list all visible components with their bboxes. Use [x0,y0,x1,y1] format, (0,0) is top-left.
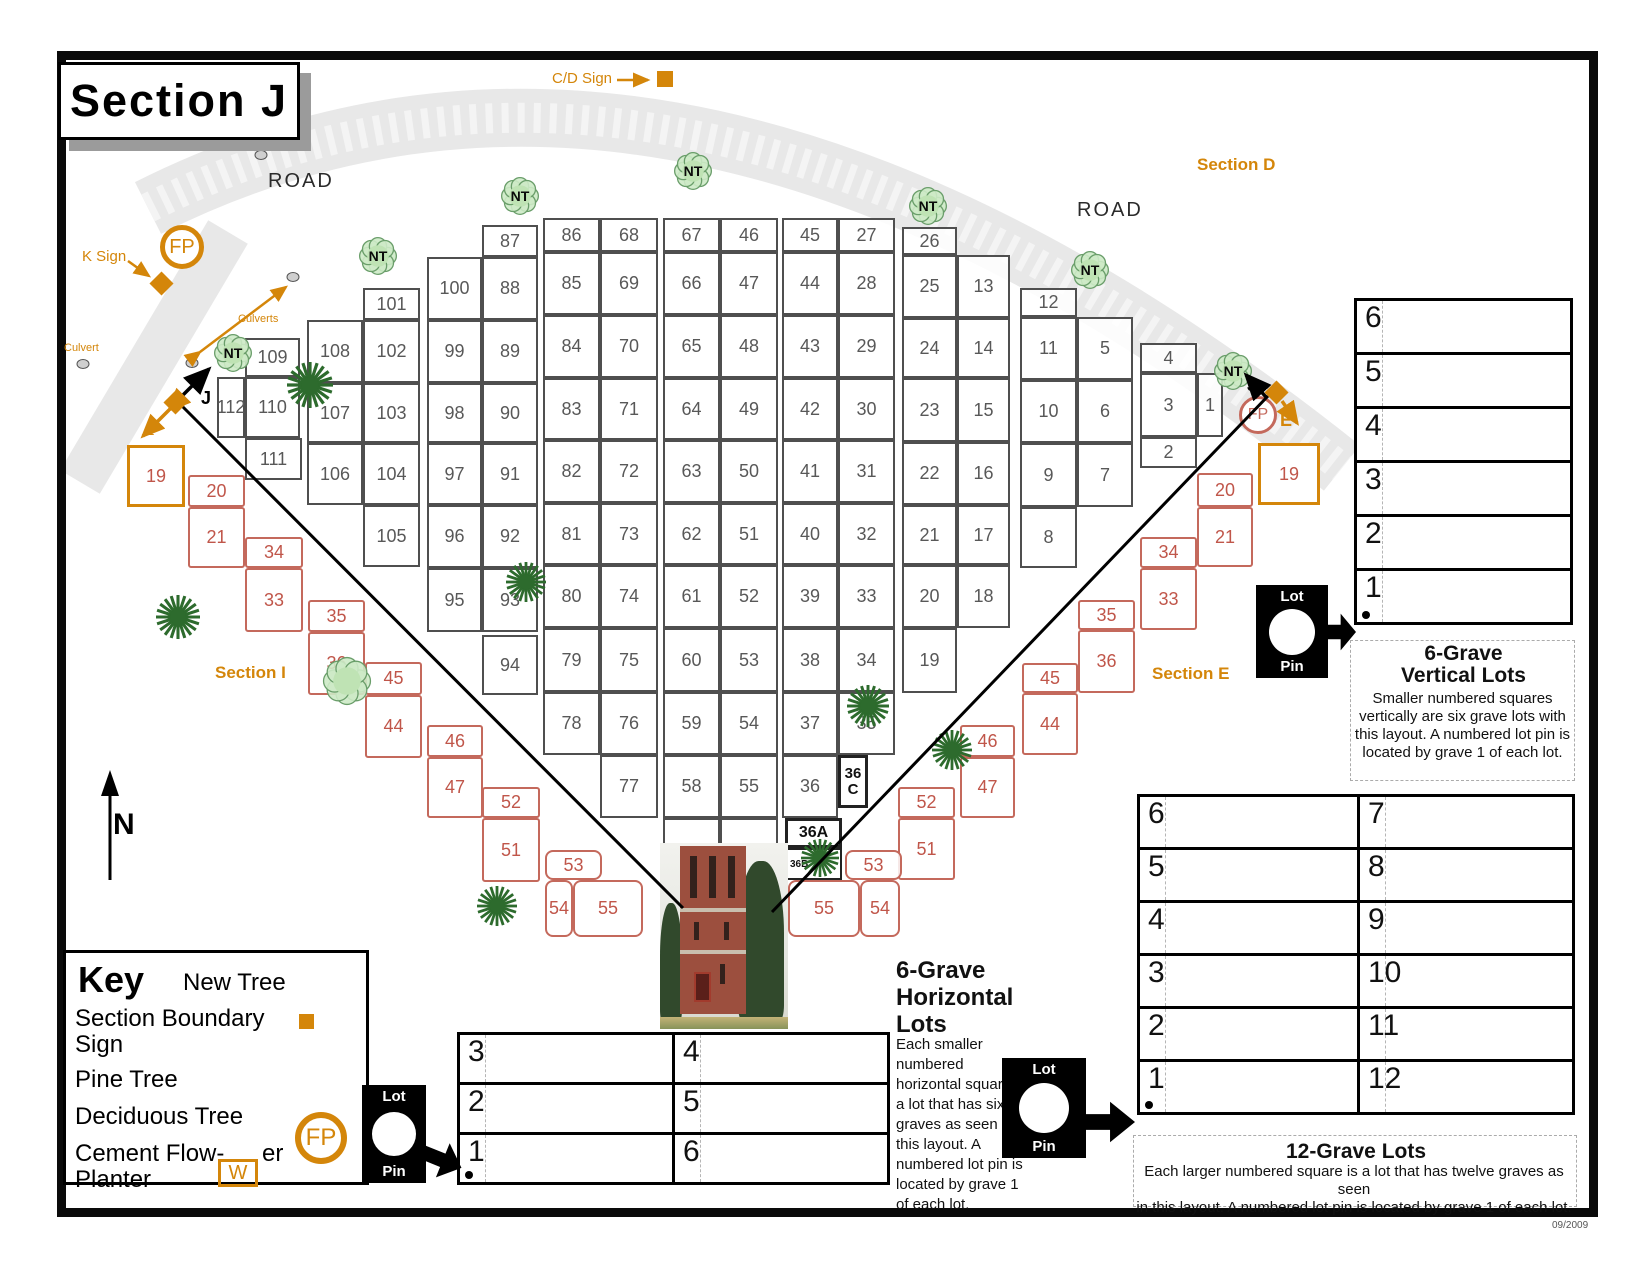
vertical6-description: Smaller numbered squaresvertically are s… [1352,690,1573,762]
section-i-label: Section I [215,663,286,683]
section-e-label: Section E [1152,664,1229,684]
lot-pin-top-label: Lot [382,1088,405,1105]
key-cement-planter-label: Cement Flow- [75,1140,224,1168]
cd-sign-label: C/D Sign [552,70,612,87]
culverts-label: Culverts [238,313,278,325]
key-fp-label: FP [306,1124,337,1152]
i-marker-label-left: I [148,420,155,440]
page-title-box: Section J [58,62,300,140]
page-title: Section J [70,75,288,127]
key-section-boundary-label-2: Sign [75,1031,123,1059]
j-marker-label-left: J [201,388,211,409]
lot-pin-top-label: Lot [1032,1061,1055,1078]
key-section-boundary-label: Section Boundary [75,1005,264,1033]
key-cement-planter-label-er: er [262,1140,283,1168]
key-title: Key [78,959,144,1001]
culvert-marker-icon [77,360,89,369]
k-sign-arrow [128,261,149,276]
key-fp-icon: FP [295,1112,347,1164]
lot-pin-bottom-label: Pin [382,1163,405,1180]
culvert-marker-icon [255,151,267,160]
k-sign-label: K Sign [82,248,126,265]
culvert-label: Culvert [64,342,99,354]
culvert-marker-icon [186,359,198,368]
key-boundary-sign-icon [299,1014,314,1029]
map-date: 09/2009 [1552,1220,1588,1231]
twelve-description: Each larger numbered square is a lot tha… [1133,1163,1575,1217]
lot-pin-vertical6: Lot Pin [1256,585,1328,678]
key-new-tree-label: New Tree [183,969,286,997]
i-arrow-left [143,410,169,436]
twelve-title: 12-Grave Lots [1137,1140,1575,1164]
k-sign-diamond-icon [149,271,173,295]
lot-pin-twelve: Lot Pin [1002,1058,1086,1158]
section-sign-diamond-right [1264,380,1288,404]
vertical6-title: 6-Grave Vertical Lots [1354,643,1573,687]
road-label-right: ROAD [1077,199,1143,222]
lot-pin-circle [1019,1083,1069,1133]
cd-section-boundary-sign-icon [657,71,673,87]
e-marker-label-right: E [1280,410,1292,431]
j-marker-label-right: J [1247,375,1257,396]
lot-pin-horizontal6: Lot Pin [362,1085,426,1183]
section-j-map-page: Section J ROAD ROAD Section D Section I … [0,0,1650,1275]
lot-pin-circle [1269,609,1315,655]
section-boundary-line-right [772,396,1268,912]
lot-pin-bottom-label: Pin [1032,1138,1055,1155]
road-label-left: ROAD [268,170,334,193]
map-key: Key New Tree Section Boundary Sign Pine … [63,950,369,1185]
vertical6-title-2: Vertical Lots [1354,665,1573,687]
culvert-marker-icon [287,273,299,282]
lot-pin-bottom-label: Pin [1280,658,1303,675]
north-label: N [113,808,135,842]
north-arrow-head [101,770,119,796]
section-boundary-line-left [178,402,683,908]
lot-pin-top-label: Lot [1280,588,1303,605]
section-d-label: Section D [1197,155,1275,175]
horizontal6-title: 6-GraveHorizontalLots [896,957,1016,1038]
key-w-label: W [229,1162,248,1185]
key-cement-planter-label-2: Planter [75,1166,151,1194]
key-deciduous-tree-label: Deciduous Tree [75,1103,243,1131]
lot-pin-circle [372,1112,416,1156]
key-pine-tree-label: Pine Tree [75,1066,178,1094]
vertical6-title-1: 6-Grave [1354,643,1573,665]
